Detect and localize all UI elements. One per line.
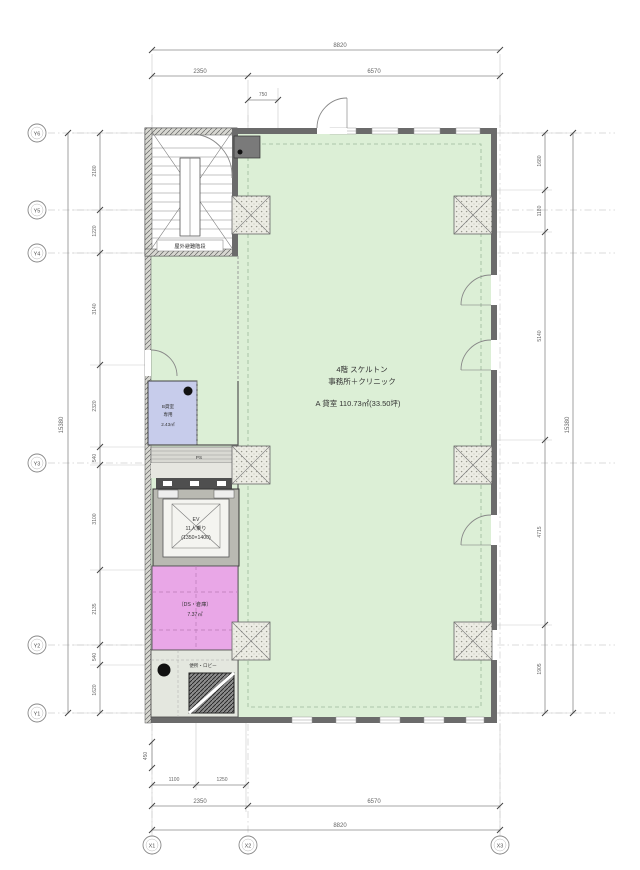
ev-line2: 11人乗り — [186, 525, 207, 532]
column-dot — [158, 664, 171, 677]
grid-bubble-y5: Y5 — [34, 209, 41, 215]
wc-line3: 2.43㎡ — [161, 421, 175, 427]
ev-line3: (1350×1400) — [181, 535, 211, 541]
wc-line2: 専用 — [163, 411, 173, 418]
dim-bottom-row-right: 6570 — [367, 799, 381, 805]
dim-top-left: 2350 — [193, 69, 207, 75]
main-room-area: A 貸室 110.73㎡(33.50坪) — [316, 398, 401, 408]
dim-left-seg-7: 540 — [92, 653, 98, 662]
grid-bubble-y3: Y3 — [34, 462, 41, 468]
dim-top-overall: 8820 — [333, 43, 347, 49]
storage-line1: （DS・倉庫） — [178, 600, 211, 608]
elevator-shaft: EV 11人乗り (1350×1400) — [153, 489, 239, 566]
wc-fixture-dot — [184, 387, 193, 396]
dim-left-seg-4: 540 — [92, 454, 98, 463]
dimension-right: 1680 1180 5140 4715 1905 15380 — [537, 130, 576, 716]
grid-bubble-y1: Y1 — [34, 712, 41, 718]
dim-right-seg-0: 1680 — [537, 155, 543, 166]
grid-bubble-x2: X2 — [245, 844, 252, 850]
storage-pink-room: （DS・倉庫） 7.37㎡ — [152, 566, 238, 650]
duct-shaft — [234, 136, 260, 158]
ev-line1: EV — [193, 517, 200, 523]
dim-left-seg-0: 2180 — [92, 165, 98, 176]
dim-left-seg-5: 3100 — [92, 513, 98, 524]
grid-bubble-y2: Y2 — [34, 644, 41, 650]
grid-bubble-x1: X1 — [149, 844, 156, 850]
dimension-left: 15380 2180 1220 3140 2320 540 3100 2135 … — [59, 130, 103, 716]
service-core: PS — [151, 447, 238, 489]
dimension-bottom: 450 1100 1250 2350 6570 8820 — [143, 739, 503, 833]
grid-bubble-y4: Y4 — [34, 252, 41, 258]
main-room-line1: 4階 スケルトン — [336, 364, 387, 374]
dim-left-seg-1: 1220 — [92, 225, 98, 236]
dim-top-sub: 750 — [259, 92, 268, 98]
ps-label: PS — [196, 455, 202, 460]
dim-right-overall: 15380 — [565, 416, 571, 433]
wc-line1: B貸室 — [162, 403, 175, 410]
dim-bottom-small: 450 — [143, 752, 149, 761]
floor-plan-drawing: 8820 2350 6570 750 15380 2180 1220 3140 … — [0, 0, 640, 870]
grid-bubble-x3: X3 — [497, 844, 504, 850]
dimension-top: 8820 2350 6570 750 — [149, 43, 503, 103]
dim-bottom-seg2: 1250 — [216, 777, 227, 783]
toilet-lobby: 便所・ロビー — [151, 650, 238, 717]
dim-left-seg-6: 2135 — [92, 603, 98, 614]
storage-line2: 7.37㎡ — [187, 610, 203, 618]
dim-left-seg-3: 2320 — [92, 400, 98, 411]
stair-label: 屋外避難階段 — [174, 242, 205, 250]
main-tenant-room — [238, 134, 491, 717]
dim-right-seg-2: 5140 — [537, 330, 543, 341]
dim-right-seg-1: 1180 — [537, 205, 543, 216]
grid-bubble-y6: Y6 — [34, 132, 41, 138]
dim-bottom-row-left: 2350 — [193, 799, 207, 805]
dim-right-seg-4: 1905 — [537, 663, 543, 674]
dim-left-seg-8: 1620 — [92, 684, 98, 695]
floor-plan-page: 8820 2350 6570 750 15380 2180 1220 3140 … — [0, 0, 640, 870]
dim-left-overall: 15380 — [59, 416, 65, 433]
toilet-label: 便所・ロビー — [189, 662, 217, 669]
ev-hall — [151, 463, 238, 478]
dim-right-seg-3: 4715 — [537, 526, 543, 537]
dim-left-seg-2: 3140 — [92, 303, 98, 314]
dim-top-right: 6570 — [367, 69, 381, 75]
main-room-line2: 事務所＋クリニック — [328, 376, 396, 386]
dim-bottom-overall: 8820 — [333, 823, 347, 829]
dim-bottom-seg1: 1100 — [169, 777, 180, 783]
entrance-door — [317, 98, 347, 134]
